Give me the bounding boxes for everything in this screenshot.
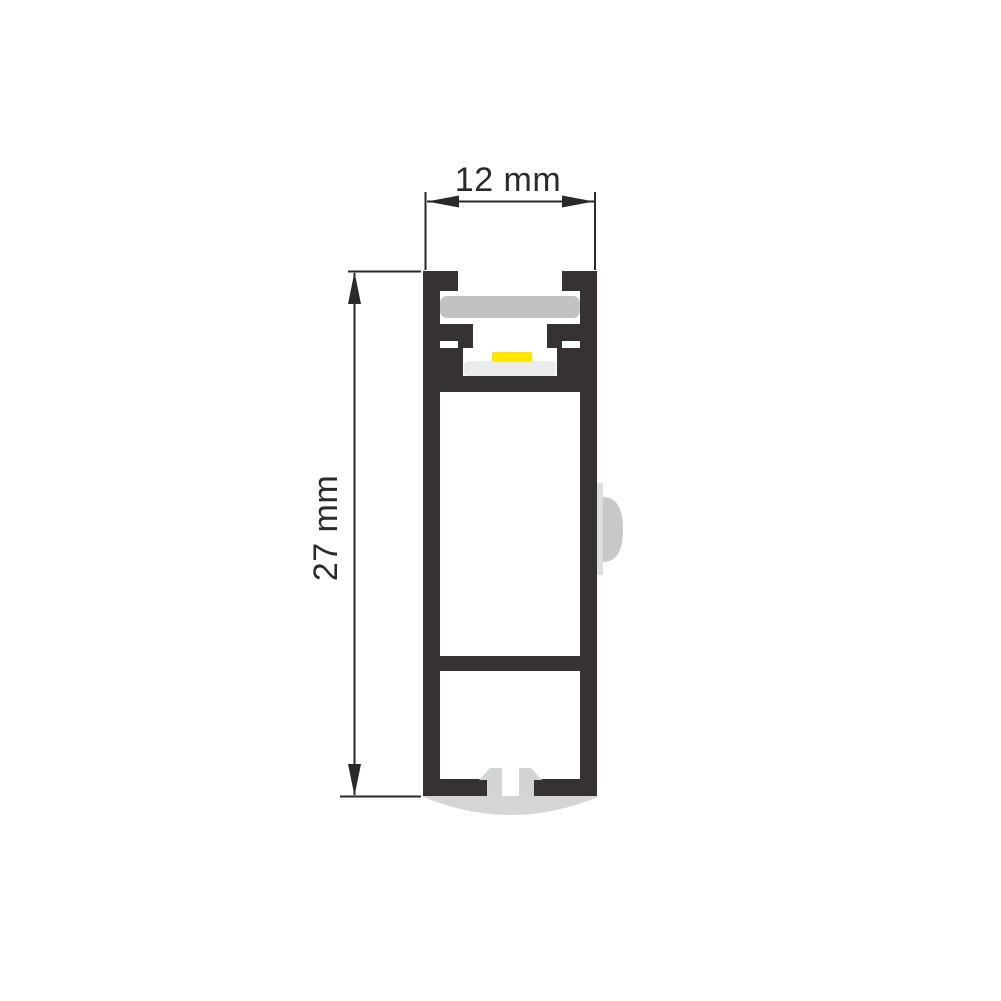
height-arrowhead-top — [348, 272, 361, 304]
left-inner-ledge — [423, 324, 473, 341]
left-ledge-tooth — [458, 341, 473, 348]
bottom-wall-right — [533, 779, 597, 796]
diffuser-cover — [440, 296, 580, 318]
profile-cross-section-drawing: 12 mm 27 mm — [0, 0, 1001, 1001]
middle-crossbar — [423, 656, 597, 671]
height-arrowhead-bottom — [348, 764, 361, 796]
led-strip — [492, 352, 532, 362]
profile-housing — [423, 271, 597, 796]
led-pcb — [464, 361, 556, 376]
right-ledge-tooth — [547, 341, 562, 348]
height-dimension — [340, 272, 421, 797]
diagram-canvas: 12 mm 27 mm — [0, 0, 1001, 1001]
width-dimension-label: 12 mm — [455, 161, 561, 199]
width-dimension — [426, 192, 596, 270]
led-shelf-web — [423, 376, 597, 392]
bottom-wall-left — [423, 779, 488, 796]
top-left-flange — [423, 271, 458, 291]
top-right-flange — [562, 271, 597, 291]
side-strip — [597, 483, 603, 575]
right-inner-ledge — [547, 324, 597, 341]
side-bump — [603, 497, 623, 562]
base-plate — [421, 796, 600, 815]
width-arrowhead-right — [562, 196, 594, 208]
height-dimension-label: 27 mm — [307, 475, 345, 581]
